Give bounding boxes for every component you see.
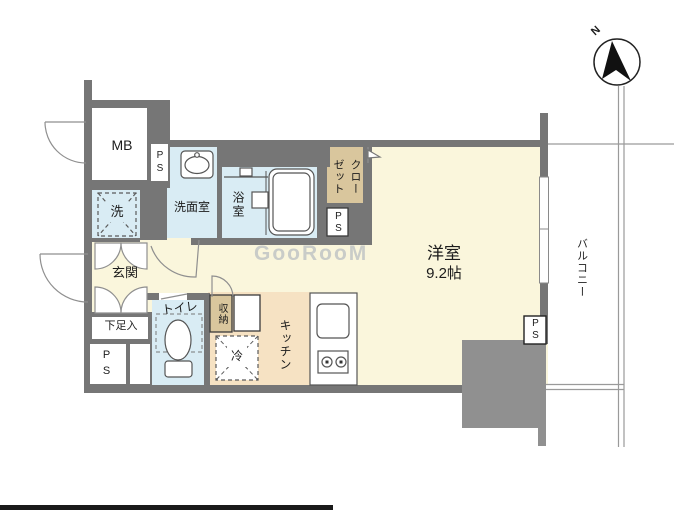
room-label-bathroom: 浴室 [229, 183, 247, 227]
mb-door [45, 122, 86, 163]
ps-label-top: PS [151, 146, 168, 180]
room-label-mb: MB [100, 137, 144, 153]
kitchen-counter-icon [310, 293, 357, 385]
floorplan: GooRooM MB PS 洗 洗面室 浴室 クロー ゼット PS 玄関 下足入… [0, 0, 675, 510]
room-label-kitchen: キッチン [275, 314, 295, 376]
room-label-powder-room: 洗面室 [165, 200, 219, 216]
entrance-door [40, 254, 88, 302]
ps-label-right: PS [527, 317, 543, 343]
room-label-washer: 洗 [105, 202, 129, 222]
room-label-main-room: 洋室 [400, 244, 488, 264]
room-label-shoe-cabinet: 下足入 [96, 319, 146, 333]
balcony-railing [546, 86, 674, 447]
room-size-main-room: 9.2帖 [400, 265, 488, 283]
room-label-closet: クロー ゼット [329, 153, 363, 201]
room-label-refrigerator: 冷 [227, 347, 247, 367]
watermark: GooRooM [254, 242, 368, 266]
bottom-edge-line [0, 505, 333, 510]
ps-label-mid: PS [329, 210, 347, 236]
counter-box [234, 295, 260, 331]
room-label-storage: 収納 [212, 297, 230, 331]
utility-space [130, 344, 150, 384]
room-label-entrance: 玄関 [102, 265, 148, 281]
vanity-sink-icon [181, 151, 213, 178]
room-label-balcony: バルコニー [572, 232, 590, 304]
ps-label-bottom: PS [97, 348, 115, 382]
structural-column [462, 340, 546, 446]
window [540, 177, 549, 283]
north-arrow-icon [594, 39, 640, 85]
